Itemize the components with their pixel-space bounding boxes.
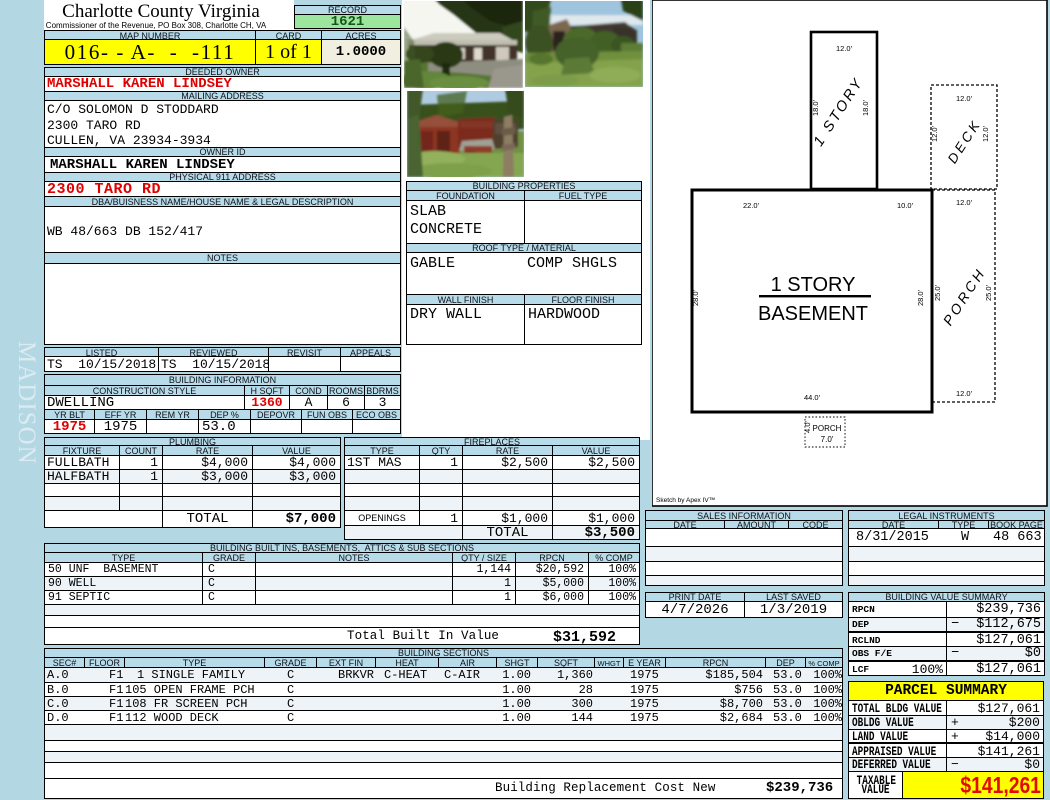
svg-text:22.0': 22.0'	[743, 201, 760, 210]
svg-text:1 STORY: 1 STORY	[771, 274, 856, 296]
svg-text:PORCH: PORCH	[813, 424, 842, 433]
svg-text:44.0': 44.0'	[804, 393, 821, 402]
svg-text:12.0': 12.0'	[956, 94, 973, 103]
svg-text:25.0': 25.0'	[933, 284, 942, 301]
svg-text:18.0': 18.0'	[811, 99, 820, 116]
svg-text:BASEMENT: BASEMENT	[758, 303, 868, 325]
svg-text:25.0': 25.0'	[984, 284, 993, 301]
svg-text:28.0': 28.0'	[691, 289, 700, 306]
svg-text:Sketch by Apex IV™: Sketch by Apex IV™	[656, 497, 715, 504]
svg-text:12.0': 12.0'	[836, 44, 853, 53]
svg-text:12.0': 12.0'	[930, 125, 939, 142]
svg-text:12.0': 12.0'	[956, 389, 973, 398]
svg-text:4.0': 4.0'	[803, 421, 812, 433]
svg-text:12.0': 12.0'	[981, 125, 990, 142]
svg-text:10.0': 10.0'	[897, 201, 914, 210]
svg-text:7.0': 7.0'	[821, 435, 834, 444]
svg-text:18.0': 18.0'	[861, 99, 870, 116]
svg-text:12.0': 12.0'	[956, 198, 973, 207]
svg-text:28.0': 28.0'	[916, 289, 925, 306]
